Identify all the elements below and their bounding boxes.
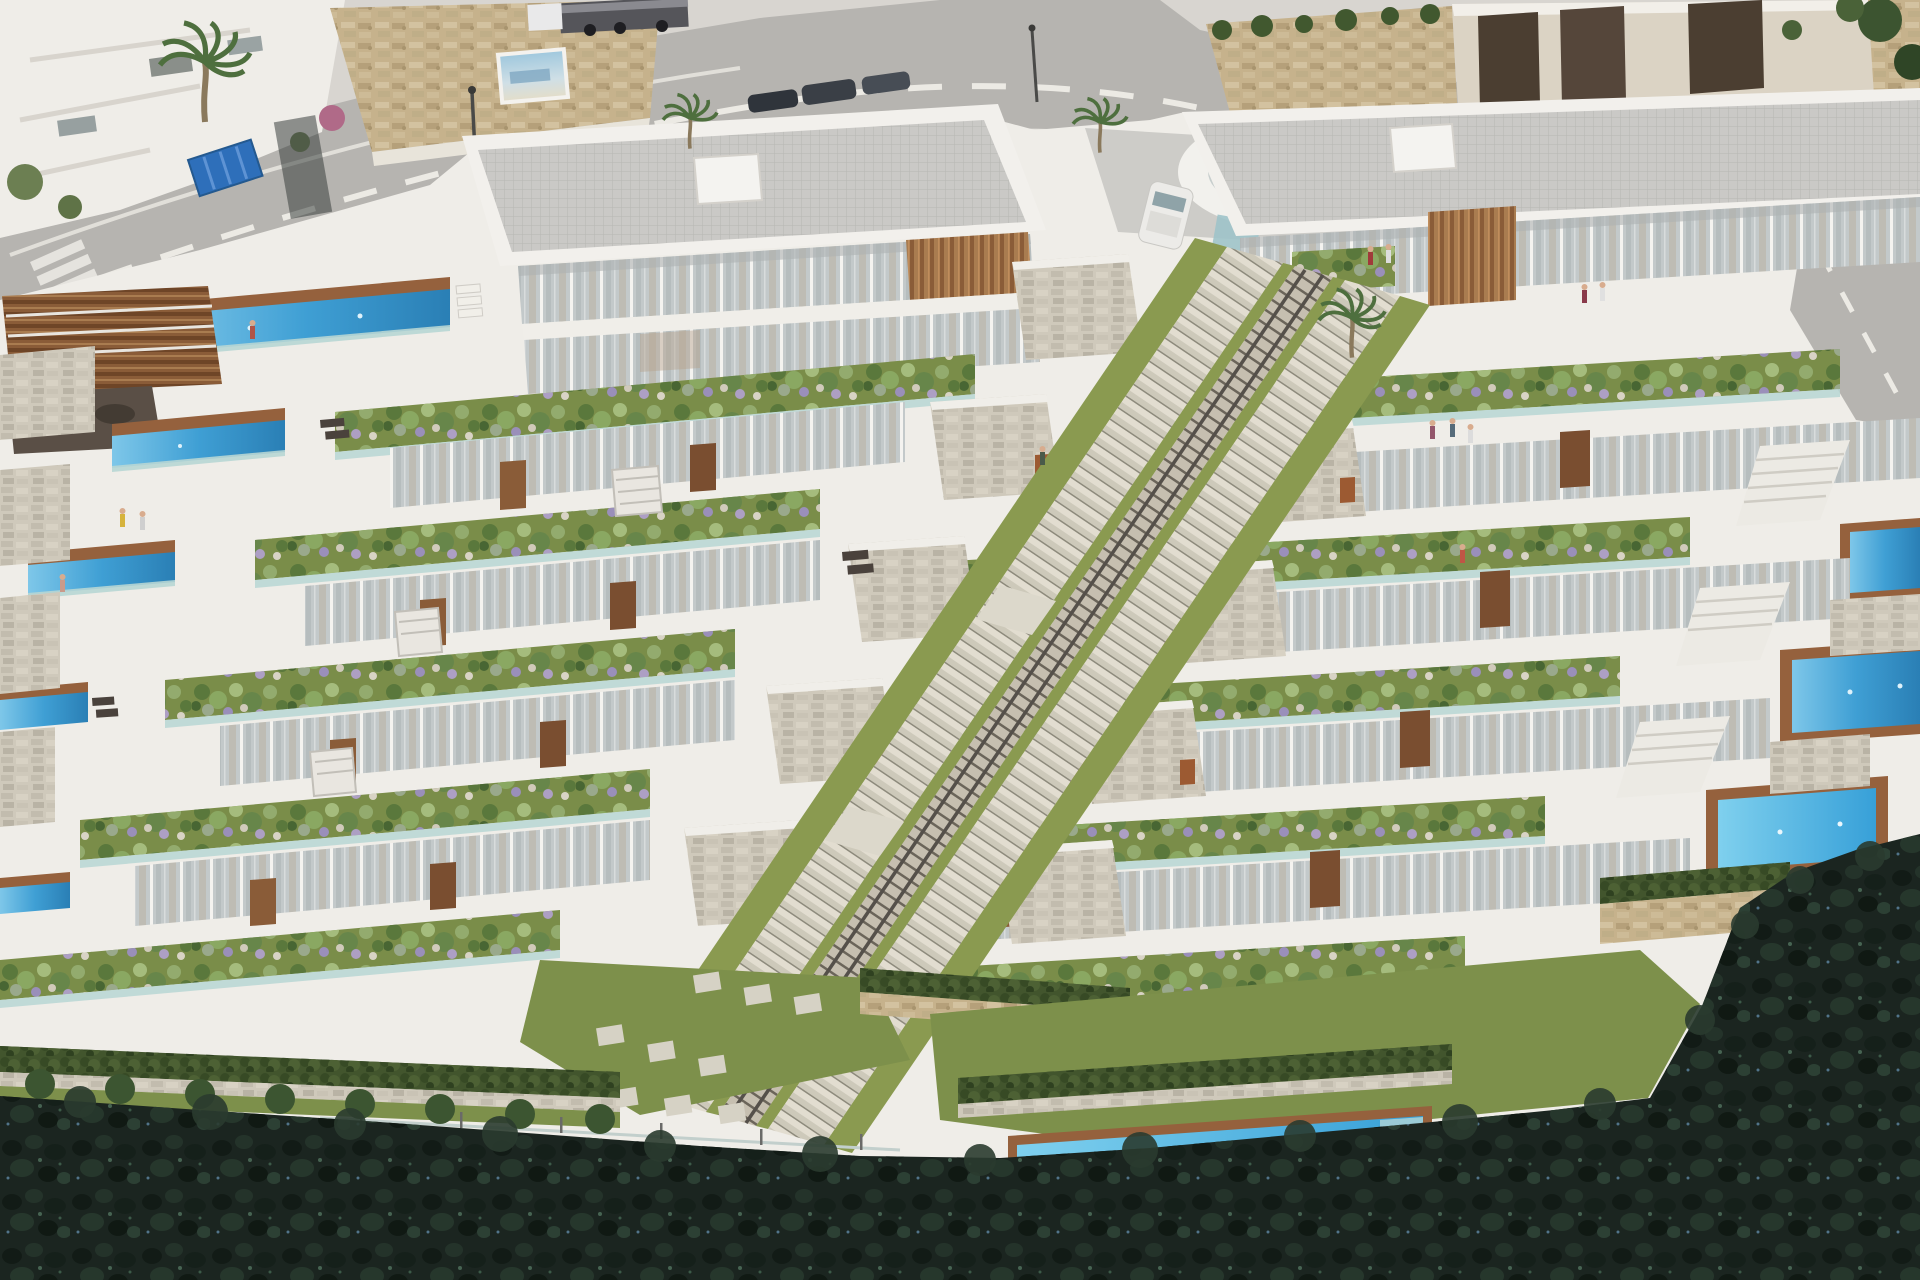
garden-tree — [58, 195, 82, 219]
person — [1450, 418, 1456, 437]
garage-door — [1560, 6, 1626, 106]
glass-reflection — [640, 330, 700, 372]
garage-door — [1688, 0, 1764, 94]
private-pool — [1780, 640, 1920, 744]
skylight — [1390, 124, 1456, 172]
wood-door — [250, 878, 276, 926]
wood-door — [1310, 850, 1340, 908]
stone-retaining-wall — [0, 464, 70, 566]
billboard — [498, 49, 568, 103]
garden-tree — [7, 164, 43, 200]
stone-wall — [1830, 594, 1920, 656]
person — [1468, 424, 1474, 443]
private-pool — [1840, 518, 1920, 602]
wood-louvers — [1428, 206, 1516, 306]
stone-wall — [1770, 734, 1870, 794]
person — [1386, 244, 1392, 263]
render-canvas — [0, 0, 1920, 1280]
person — [1040, 446, 1046, 465]
volume-door — [1340, 477, 1355, 503]
person — [250, 320, 256, 339]
wood-door — [1400, 710, 1430, 768]
wood-door — [430, 862, 456, 910]
wood-door — [690, 443, 716, 492]
private-pool — [0, 872, 70, 914]
person — [140, 511, 146, 530]
person — [1368, 246, 1374, 265]
left-apartment-block — [462, 104, 1046, 394]
wood-door — [540, 720, 566, 768]
stone-retaining-wall — [0, 727, 55, 827]
wood-door — [500, 460, 526, 510]
garage-door — [1478, 12, 1540, 110]
person — [60, 574, 66, 592]
wood-door — [610, 581, 636, 630]
stone-retaining-wall — [0, 592, 60, 694]
stone-volume — [1012, 254, 1142, 360]
wood-door — [1480, 570, 1510, 628]
architectural-rendering — [0, 0, 1920, 1280]
person — [1460, 544, 1466, 563]
wood-door — [1560, 430, 1590, 488]
volume-door — [1180, 759, 1195, 785]
stone-retaining-wall — [0, 346, 95, 440]
person — [120, 508, 126, 527]
skylight — [694, 154, 762, 204]
bougainvillea — [319, 105, 345, 131]
person — [1430, 420, 1436, 439]
person — [1600, 282, 1606, 301]
person — [1582, 284, 1588, 303]
